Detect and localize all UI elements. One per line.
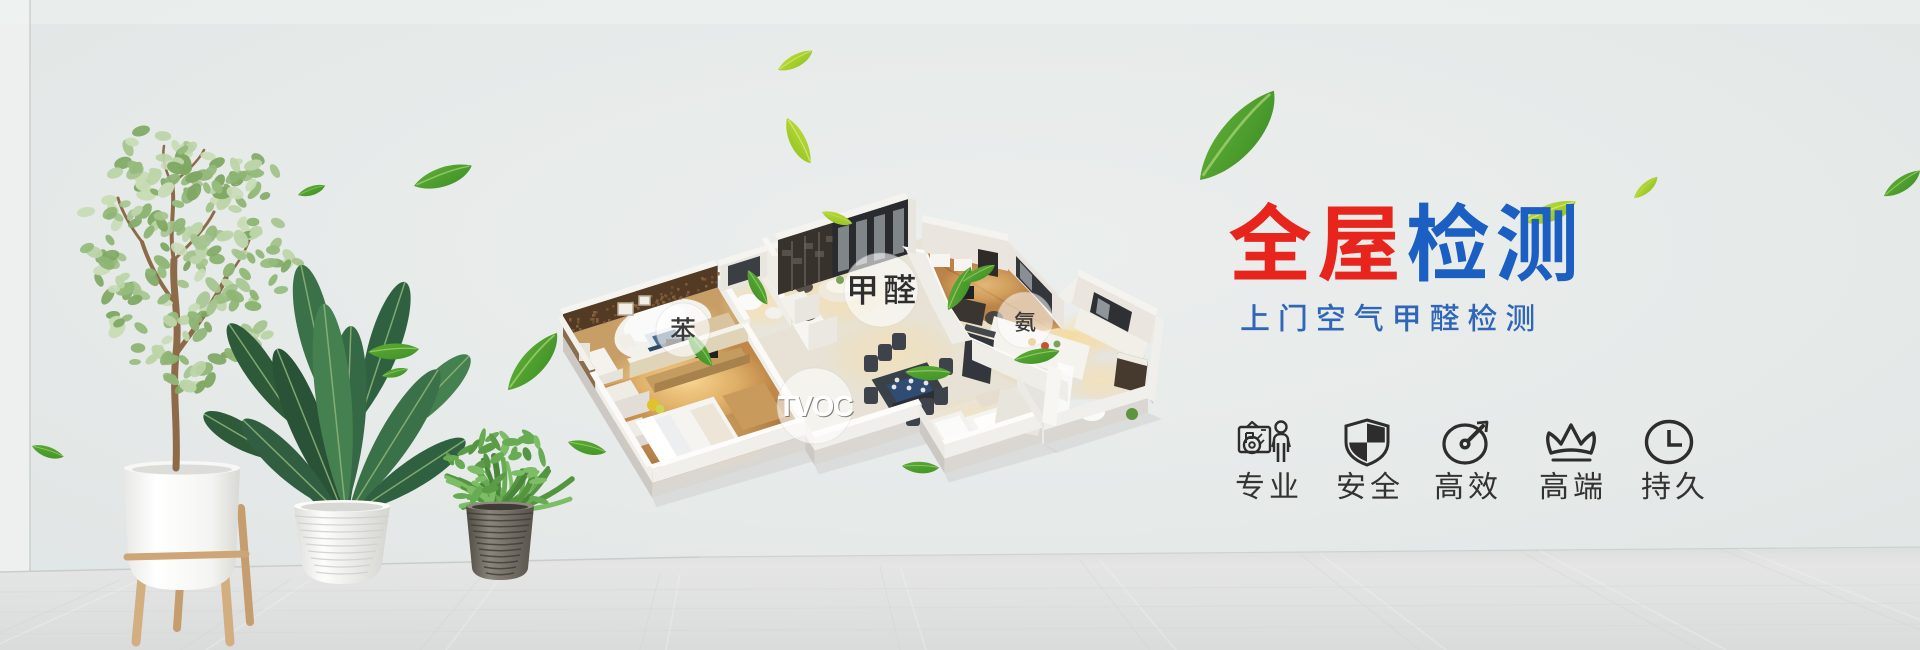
svg-text:TVOC: TVOC (778, 391, 854, 423)
